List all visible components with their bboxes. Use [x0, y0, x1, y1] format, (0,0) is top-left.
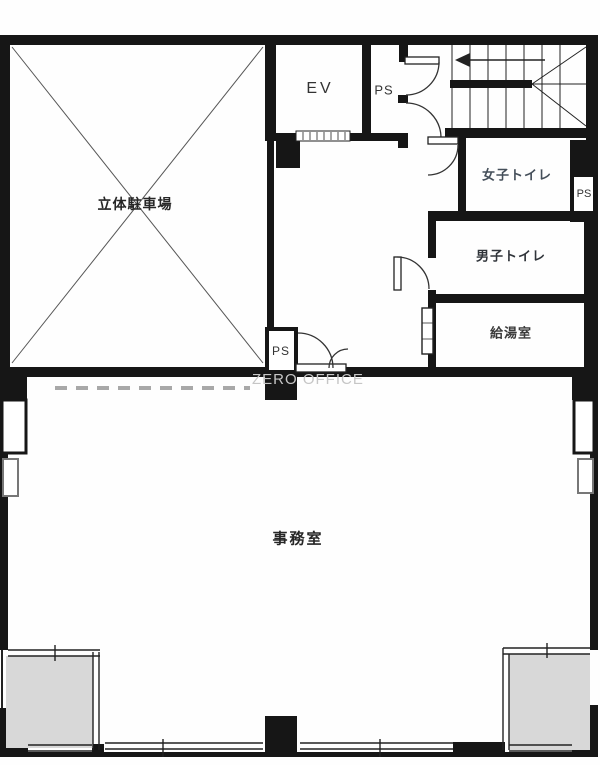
- balcony-left: [2, 645, 100, 751]
- room-label-parking: 立体駐車場: [98, 194, 173, 214]
- balcony-right: [503, 643, 590, 751]
- elevator-door: [296, 131, 350, 141]
- room-label-kitchenette: 給湯室: [490, 323, 532, 342]
- room-label-mens-toilet: 男子トイレ: [476, 246, 546, 265]
- stairs: [450, 45, 586, 128]
- room-label-pipe-space-hall: PS: [272, 344, 290, 358]
- room-label-pipe-space-right: PS: [577, 188, 592, 200]
- room-label-pipe-space-top: PS: [374, 83, 393, 98]
- stairs-up-arrow: [455, 53, 545, 67]
- floorplan: 立体駐車場 EV PS PS PS 女子トイレ 男子トイレ 給湯室 事務室 ZE…: [0, 0, 600, 765]
- kitchenette-hatch: [422, 308, 433, 354]
- room-label-elevator: EV: [306, 80, 333, 98]
- room-label-womens-toilet: 女子トイレ: [482, 165, 552, 184]
- room-label-office: 事務室: [272, 528, 323, 549]
- watermark-text: ZERO OFFICE: [252, 371, 364, 388]
- side-windows: [2, 400, 594, 496]
